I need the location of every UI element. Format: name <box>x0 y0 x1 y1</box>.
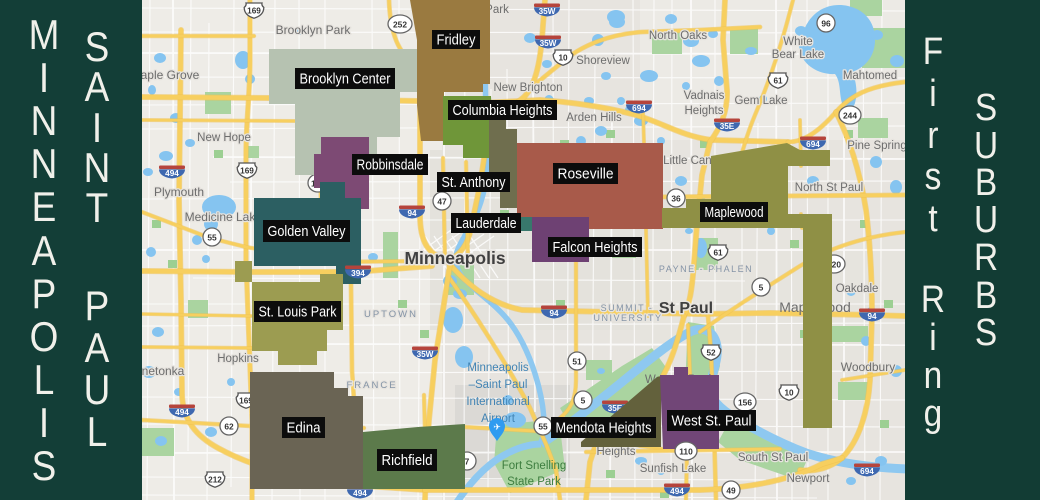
svg-text:St Paul: St Paul <box>659 300 713 317</box>
svg-text:R: R <box>974 236 998 278</box>
svg-text:96: 96 <box>821 18 831 28</box>
svg-text:49: 49 <box>726 485 736 495</box>
svg-text:L: L <box>34 357 55 404</box>
svg-text:394: 394 <box>351 269 365 278</box>
svg-text:10: 10 <box>558 53 568 62</box>
svg-text:244: 244 <box>843 110 857 120</box>
svg-text:35W: 35W <box>540 39 557 48</box>
svg-text:i: i <box>929 72 936 114</box>
svg-text:A: A <box>85 64 110 111</box>
svg-text:L: L <box>87 409 108 456</box>
svg-text:I: I <box>39 400 49 447</box>
svg-text:West St. Paul: West St. Paul <box>672 413 752 430</box>
svg-text:Woodbury: Woodbury <box>841 360 895 374</box>
svg-text:494: 494 <box>165 169 179 178</box>
svg-text:g: g <box>924 392 943 434</box>
svg-text:Shoreview: Shoreview <box>576 55 630 67</box>
svg-text:169: 169 <box>240 166 254 175</box>
svg-text:61: 61 <box>773 76 783 85</box>
svg-text:St. Anthony: St. Anthony <box>442 174 506 191</box>
svg-text:New Brighton: New Brighton <box>493 82 562 94</box>
svg-text:Brooklyn Park: Brooklyn Park <box>276 23 352 37</box>
svg-text:47: 47 <box>437 196 447 206</box>
svg-text:169: 169 <box>247 6 261 15</box>
svg-text:Gem Lake: Gem Lake <box>734 95 787 107</box>
svg-text:A: A <box>85 325 110 372</box>
svg-text:S: S <box>975 311 997 353</box>
svg-text:156: 156 <box>738 397 752 407</box>
svg-text:35W: 35W <box>417 350 434 359</box>
svg-text:O: O <box>30 314 59 361</box>
svg-text:Bear Lake: Bear Lake <box>772 49 824 61</box>
svg-text:Brooklyn Center: Brooklyn Center <box>300 71 391 88</box>
svg-text:110: 110 <box>679 446 693 456</box>
svg-text:F: F <box>923 30 943 72</box>
svg-text:U: U <box>974 198 998 240</box>
svg-text:South St Paul: South St Paul <box>738 452 808 464</box>
svg-text:5: 5 <box>759 282 764 292</box>
svg-text:Lauderdale: Lauderdale <box>456 215 517 232</box>
svg-text:E: E <box>32 184 57 231</box>
svg-text:52: 52 <box>706 348 716 357</box>
svg-text:51: 51 <box>572 356 582 366</box>
svg-text:s: s <box>925 155 942 197</box>
svg-text:Minneapolis: Minneapolis <box>467 362 529 374</box>
svg-text:New Hope: New Hope <box>197 132 251 144</box>
svg-text:P: P <box>32 271 57 318</box>
svg-text:North Oaks: North Oaks <box>649 30 707 42</box>
svg-text:Roseville: Roseville <box>558 166 614 183</box>
svg-text:Heights: Heights <box>685 105 724 117</box>
svg-text:t: t <box>928 197 937 239</box>
svg-text:Oakdale: Oakdale <box>836 283 879 295</box>
svg-text:35E: 35E <box>720 122 735 131</box>
svg-text:61: 61 <box>713 248 723 257</box>
svg-text:UNIVERSITY: UNIVERSITY <box>593 313 662 323</box>
svg-text:✈: ✈ <box>493 422 501 432</box>
svg-text:94: 94 <box>407 209 417 218</box>
svg-text:M: M <box>29 12 60 59</box>
svg-text:694: 694 <box>806 140 820 149</box>
svg-text:62: 62 <box>224 421 234 431</box>
svg-text:North St Paul: North St Paul <box>795 182 863 194</box>
svg-text:694: 694 <box>860 467 874 476</box>
svg-text:r: r <box>927 114 938 156</box>
svg-text:Arden Hills: Arden Hills <box>566 112 622 124</box>
svg-text:–Saint Paul: –Saint Paul <box>469 379 528 391</box>
svg-text:R: R <box>921 278 945 320</box>
svg-text:7: 7 <box>465 456 470 466</box>
svg-text:Maplewood: Maplewood <box>705 204 764 221</box>
svg-text:S: S <box>32 443 57 490</box>
svg-text:UPTOWN: UPTOWN <box>364 309 418 320</box>
svg-text:St. Louis Park: St. Louis Park <box>259 304 337 321</box>
svg-text:Falcon Heights: Falcon Heights <box>553 239 638 256</box>
svg-text:Richfield: Richfield <box>382 452 433 469</box>
svg-text:Edina: Edina <box>287 420 322 437</box>
svg-text:55: 55 <box>538 421 548 431</box>
svg-text:N: N <box>31 141 58 188</box>
svg-text:Heights: Heights <box>597 446 636 458</box>
svg-text:Robbinsdale: Robbinsdale <box>357 157 424 174</box>
svg-text:Newport: Newport <box>787 473 831 485</box>
svg-text:Minneapolis: Minneapolis <box>404 248 505 268</box>
svg-text:Golden Valley: Golden Valley <box>268 223 346 240</box>
svg-text:n: n <box>924 354 943 396</box>
svg-text:S: S <box>975 86 997 128</box>
svg-text:T: T <box>86 185 109 232</box>
svg-text:P: P <box>85 283 110 330</box>
svg-text:I: I <box>39 55 49 102</box>
svg-text:55: 55 <box>207 232 217 242</box>
svg-text:Fort Snelling: Fort Snelling <box>502 460 567 472</box>
svg-text:SUMMIT -: SUMMIT - <box>601 303 654 313</box>
svg-text:5: 5 <box>581 395 586 405</box>
svg-text:netonka: netonka <box>142 364 185 378</box>
svg-text:494: 494 <box>175 408 189 417</box>
svg-text:94: 94 <box>867 312 877 321</box>
svg-text:35W: 35W <box>539 7 556 16</box>
svg-text:Hopkins: Hopkins <box>217 353 259 365</box>
svg-text:U: U <box>84 367 111 414</box>
svg-text:494: 494 <box>670 487 684 496</box>
svg-text:i: i <box>929 316 936 358</box>
svg-text:252: 252 <box>393 19 407 29</box>
svg-text:Vadnais: Vadnais <box>684 90 725 102</box>
svg-text:694: 694 <box>632 104 646 113</box>
svg-text:FRANCE: FRANCE <box>346 380 397 391</box>
svg-text:Mendota Heights: Mendota Heights <box>556 420 652 437</box>
svg-text:Plymouth: Plymouth <box>154 185 204 199</box>
svg-text:Mahtomed: Mahtomed <box>843 70 897 82</box>
svg-text:Sunfish Lake: Sunfish Lake <box>640 463 707 475</box>
svg-text:494: 494 <box>353 489 367 498</box>
svg-text:212: 212 <box>208 475 222 484</box>
svg-text:Fridley: Fridley <box>437 32 476 49</box>
svg-text:36: 36 <box>671 193 681 203</box>
svg-text:White: White <box>783 36 812 48</box>
svg-text:N: N <box>31 98 58 145</box>
svg-text:94: 94 <box>549 309 559 318</box>
svg-text:State Park: State Park <box>507 476 561 488</box>
svg-text:Columbia Heights: Columbia Heights <box>453 102 553 119</box>
svg-text:PAYNE - PHALEN: PAYNE - PHALEN <box>659 264 753 274</box>
svg-text:10: 10 <box>784 388 794 397</box>
svg-text:International: International <box>466 396 529 408</box>
svg-text:Medicine Lak: Medicine Lak <box>185 210 257 224</box>
svg-text:A: A <box>32 228 57 275</box>
svg-text:Pine Spring: Pine Spring <box>847 140 906 152</box>
